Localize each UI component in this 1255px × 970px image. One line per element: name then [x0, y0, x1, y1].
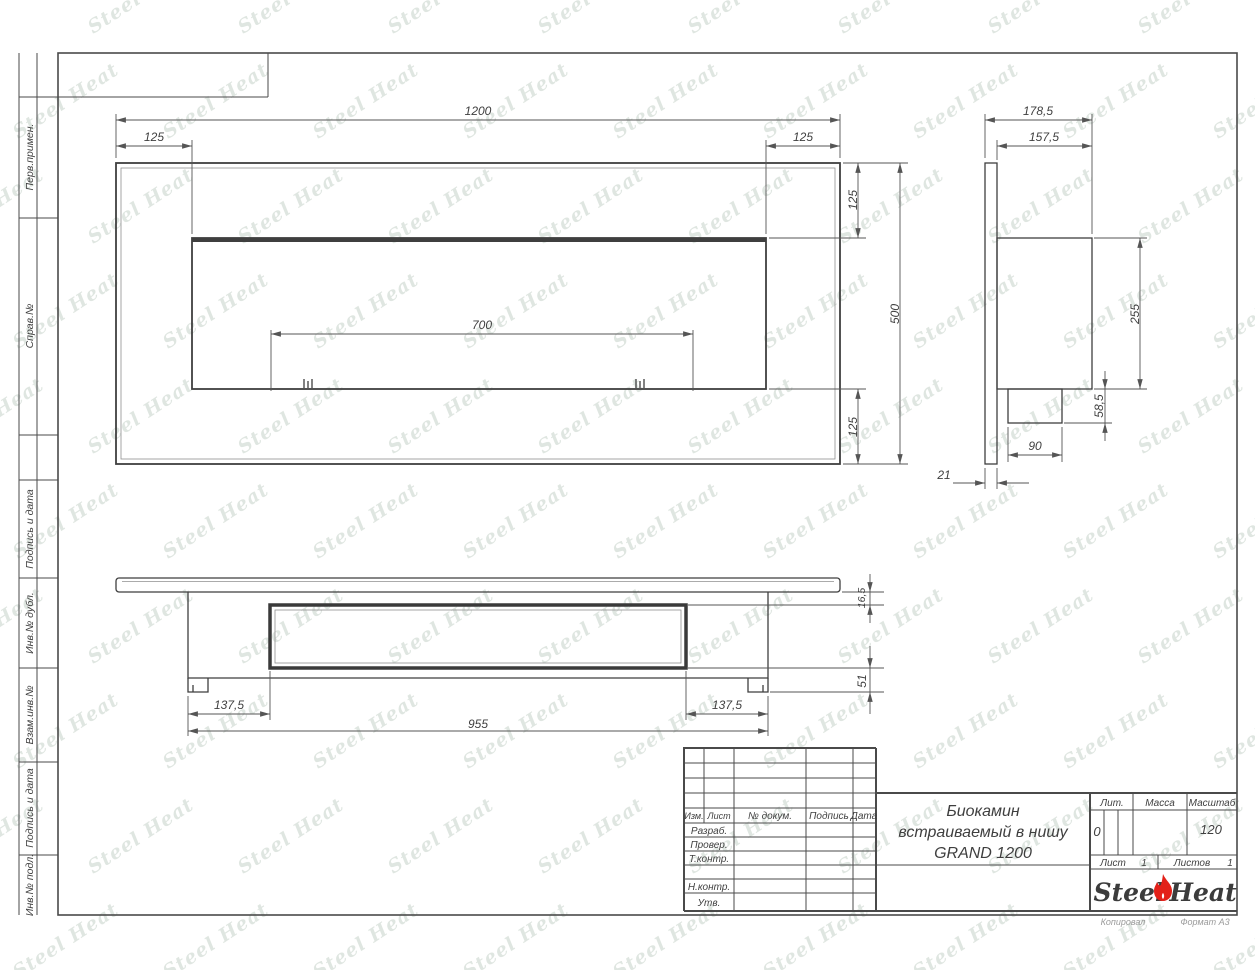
dim-side-body-height: 255 — [1128, 304, 1142, 325]
role-ncontrol: Н.контр. — [688, 882, 730, 893]
margin-label: Инв.№ дубл. — [24, 592, 36, 654]
role-approved: Утв. — [697, 898, 721, 909]
dim-front-left-offset: 125 — [144, 130, 164, 144]
lit-label: Лит. — [1099, 798, 1123, 809]
doc-title-line3: GRAND 1200 — [934, 845, 1032, 862]
dim-side-panel-thickness: 21 — [936, 468, 950, 482]
front-view: 1200 125 125 700 125 500 — [116, 104, 908, 464]
dim-front-bottom-offset: 125 — [846, 417, 860, 437]
drawing-sheet: Steel HeatSteel HeatSteel HeatSteel Heat… — [0, 0, 1255, 970]
lit-value: 0 — [1093, 824, 1101, 839]
margin-label: Инв.№ подл. — [24, 854, 36, 916]
scale-label: Масштаб — [1189, 797, 1236, 809]
revision-header-date: Дата — [850, 811, 878, 822]
sheet-label: Лист — [1099, 858, 1126, 869]
scale-value: 120 — [1200, 822, 1222, 837]
sheets-label: Листов — [1173, 858, 1210, 869]
sheet-frame — [19, 53, 1237, 915]
burner-clip — [636, 379, 644, 388]
sheet-value: 1 — [1141, 858, 1147, 869]
dim-bottom-body-width: 955 — [468, 717, 488, 731]
revision-header-sign: Подпись — [809, 811, 849, 822]
revision-header-izm: Изм. — [684, 811, 703, 821]
dim-front-top-offset: 125 — [846, 190, 860, 210]
revision-header-list: Лист — [706, 811, 731, 821]
dim-front-overall-width: 1200 — [465, 104, 492, 118]
margin-label: Взам.инв.№ — [24, 685, 36, 744]
mass-label: Масса — [1145, 798, 1175, 809]
revision-header-doc: № докум. — [748, 811, 792, 822]
doc-title-line1: Биокамин — [946, 803, 1020, 820]
title-block: Изм. Лист № докум. Подпись Дата Разраб. … — [684, 748, 1237, 911]
role-developed: Разраб. — [691, 825, 727, 837]
margin-label: Подпись и дата — [24, 489, 36, 569]
margin-strip: Перв.примен. Справ.№ Подпись и дата Инв.… — [24, 124, 36, 917]
logo-text-heat: Heat — [1168, 878, 1237, 907]
dim-bottom-panel-lip: 16,5 — [856, 588, 868, 609]
dim-side-burner-width: 90 — [1028, 439, 1042, 453]
steelheat-logo: Steel Heat — [1094, 874, 1238, 907]
dim-bottom-right-offset: 137,5 — [712, 698, 742, 712]
margin-label: Перв.примен. — [24, 124, 36, 191]
dim-side-overall-depth: 178,5 — [1023, 104, 1053, 118]
margin-label: Справ.№ — [24, 304, 36, 349]
dim-front-height: 500 — [888, 304, 902, 324]
dim-front-burner-width: 700 — [472, 318, 492, 332]
sheets-value: 1 — [1227, 858, 1233, 869]
role-checked: Провер. — [690, 840, 727, 851]
dim-bottom-foot-height: 51 — [855, 674, 869, 687]
bottom-view: 16,5 51 137,5 137,5 955 — [116, 574, 884, 736]
drawing-canvas: Перв.примен. Справ.№ Подпись и дата Инв.… — [0, 0, 1255, 970]
footer-copied-label: Копировал — [1101, 917, 1146, 927]
side-view: 178,5 157,5 255 58,5 90 — [936, 104, 1147, 489]
logo-text-steel: Steel — [1094, 878, 1165, 907]
dim-side-burner-height: 58,5 — [1092, 394, 1106, 418]
margin-label: Подпись и дата — [24, 768, 36, 848]
dim-side-body-depth: 157,5 — [1029, 130, 1059, 144]
footer-format-label: Формат А3 — [1180, 917, 1229, 927]
dim-bottom-left-offset: 137,5 — [214, 698, 244, 712]
role-tcontrol: Т.контр. — [689, 854, 729, 865]
doc-title-line2: встраиваемый в нишу — [898, 824, 1068, 841]
burner-clip — [304, 379, 312, 388]
dim-front-right-offset: 125 — [793, 130, 813, 144]
